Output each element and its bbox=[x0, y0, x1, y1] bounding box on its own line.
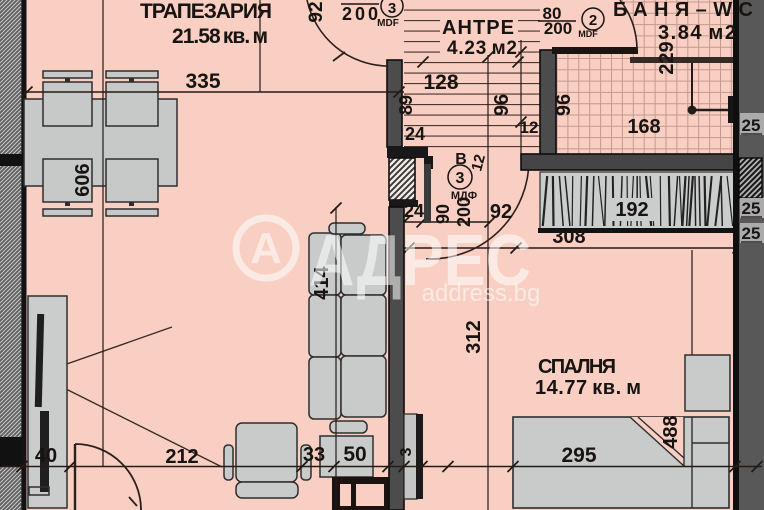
svg-text:24: 24 bbox=[404, 201, 424, 221]
svg-text:MDF: MDF bbox=[377, 18, 399, 29]
svg-text:3: 3 bbox=[398, 447, 415, 456]
svg-text:212: 212 bbox=[165, 446, 198, 468]
svg-text:БАНЯ–WC: БАНЯ–WC bbox=[613, 0, 753, 21]
svg-text:96: 96 bbox=[491, 94, 513, 116]
svg-text:488: 488 bbox=[660, 415, 682, 448]
svg-text:21.58 кв. м: 21.58 кв. м bbox=[172, 25, 268, 48]
svg-text:200: 200 bbox=[342, 4, 378, 24]
svg-text:address.bg: address.bg bbox=[422, 280, 541, 307]
svg-text:89: 89 bbox=[396, 95, 416, 115]
svg-text:24: 24 bbox=[405, 124, 425, 144]
svg-text:40: 40 bbox=[35, 445, 57, 467]
svg-text:3.84 м2: 3.84 м2 bbox=[658, 22, 736, 44]
svg-text:ТРАПЕЗАРИЯ: ТРАПЕЗАРИЯ bbox=[140, 0, 272, 23]
svg-text:312: 312 bbox=[463, 320, 485, 353]
svg-text:128: 128 bbox=[423, 71, 458, 94]
svg-text:4.23 м2: 4.23 м2 bbox=[447, 38, 517, 59]
svg-text:229: 229 bbox=[656, 41, 678, 74]
svg-text:50: 50 bbox=[343, 443, 366, 466]
svg-text:3: 3 bbox=[388, 0, 396, 17]
svg-text:335: 335 bbox=[185, 70, 220, 93]
svg-text:308: 308 bbox=[552, 226, 585, 248]
svg-text:2: 2 bbox=[589, 12, 597, 29]
svg-text:92: 92 bbox=[306, 1, 327, 22]
svg-text:295: 295 bbox=[561, 444, 596, 467]
svg-text:606: 606 bbox=[72, 163, 94, 196]
svg-text:3: 3 bbox=[456, 170, 465, 187]
svg-text:200: 200 bbox=[544, 19, 572, 38]
svg-text:12: 12 bbox=[520, 118, 539, 137]
svg-text:92: 92 bbox=[490, 201, 512, 223]
svg-text:192: 192 bbox=[615, 199, 648, 221]
svg-text:25: 25 bbox=[742, 224, 761, 243]
svg-text:АНТРЕ: АНТРЕ bbox=[442, 17, 514, 39]
svg-text:33: 33 bbox=[303, 444, 325, 466]
svg-text:А: А bbox=[250, 224, 282, 273]
svg-text:96: 96 bbox=[553, 94, 575, 116]
svg-text:168: 168 bbox=[627, 116, 660, 138]
svg-text:СПАЛНЯ: СПАЛНЯ bbox=[538, 356, 616, 378]
svg-text:25: 25 bbox=[742, 116, 761, 135]
svg-text:14.77 кв. м: 14.77 кв. м bbox=[535, 377, 641, 399]
svg-text:25: 25 bbox=[742, 199, 761, 218]
